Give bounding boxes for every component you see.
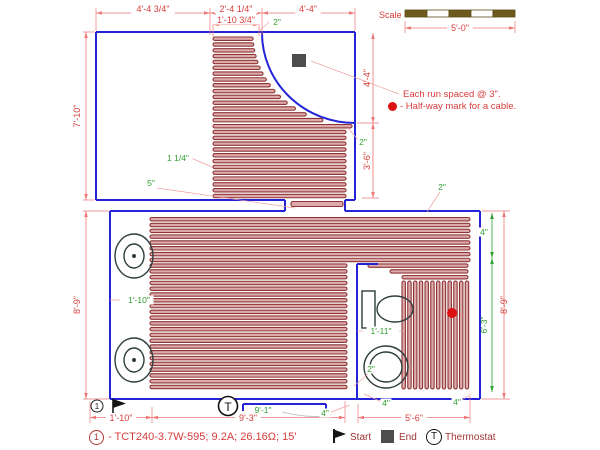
- halfway-dot-icon: [388, 102, 397, 111]
- svg-text:4": 4": [453, 397, 461, 407]
- svg-text:1'-11": 1'-11": [370, 326, 391, 336]
- note-run-spacing: Each run spaced @ 3".: [403, 89, 501, 100]
- svg-text:5'-6": 5'-6": [405, 413, 423, 423]
- svg-text:3'-6": 3'-6": [362, 152, 372, 170]
- svg-text:5'-0": 5'-0": [451, 23, 469, 33]
- svg-text:T: T: [224, 400, 232, 414]
- floor-heating-plan: 4'-4 3/4"2'-4 1/4"4'-4"1'-10 3/4"7'-10"4…: [0, 0, 600, 450]
- legend-start-label: Start: [350, 432, 371, 443]
- svg-text:2": 2": [438, 182, 446, 192]
- legend-circuit-spec: - TCT240-3.7W-595; 9.2A; 26.16Ω; 15': [108, 431, 296, 443]
- svg-text:4": 4": [382, 398, 390, 408]
- note-halfway-text: - Half-way mark for a cable.: [400, 101, 516, 112]
- start-flag-icon: [333, 429, 350, 443]
- svg-text:7'-10": 7'-10": [72, 105, 82, 128]
- svg-text:1'-10 3/4": 1'-10 3/4": [217, 15, 255, 25]
- plan-canvas: 4'-4 3/4"2'-4 1/4"4'-4"1'-10 3/4"7'-10"4…: [0, 0, 600, 450]
- svg-text:4'-4": 4'-4": [299, 4, 317, 14]
- svg-text:4": 4": [480, 227, 488, 237]
- svg-text:1: 1: [95, 402, 100, 411]
- svg-text:4": 4": [321, 408, 329, 418]
- end-square-icon: [381, 430, 394, 443]
- svg-text:4'-4 3/4": 4'-4 3/4": [137, 4, 170, 14]
- svg-text:1'-10": 1'-10": [128, 295, 150, 305]
- svg-text:1 1/4": 1 1/4": [167, 153, 189, 163]
- scale-bar: Scale: [379, 10, 515, 20]
- svg-text:2": 2": [359, 137, 367, 147]
- svg-text:8'-9": 8'-9": [499, 296, 509, 314]
- svg-text:2'-4 1/4": 2'-4 1/4": [220, 4, 253, 14]
- svg-text:1'-10": 1'-10": [110, 413, 133, 423]
- svg-text:8'-9": 8'-9": [72, 296, 82, 314]
- legend-end-label: End: [399, 432, 417, 443]
- svg-text:9'-1": 9'-1": [255, 405, 272, 415]
- legend-thermostat-label: Thermostat: [445, 432, 496, 443]
- svg-text:2": 2": [273, 17, 281, 27]
- note-halfway: - Half-way mark for a cable.: [388, 101, 516, 112]
- thermostat-icon: T: [426, 429, 442, 445]
- svg-text:Scale: Scale: [379, 10, 402, 20]
- svg-text:4'-4": 4'-4": [362, 69, 372, 87]
- svg-text:2": 2": [367, 364, 375, 374]
- legend-circuit-number: 1: [89, 430, 104, 445]
- svg-text:6'-3": 6'-3": [479, 317, 489, 334]
- svg-text:5": 5": [147, 178, 155, 188]
